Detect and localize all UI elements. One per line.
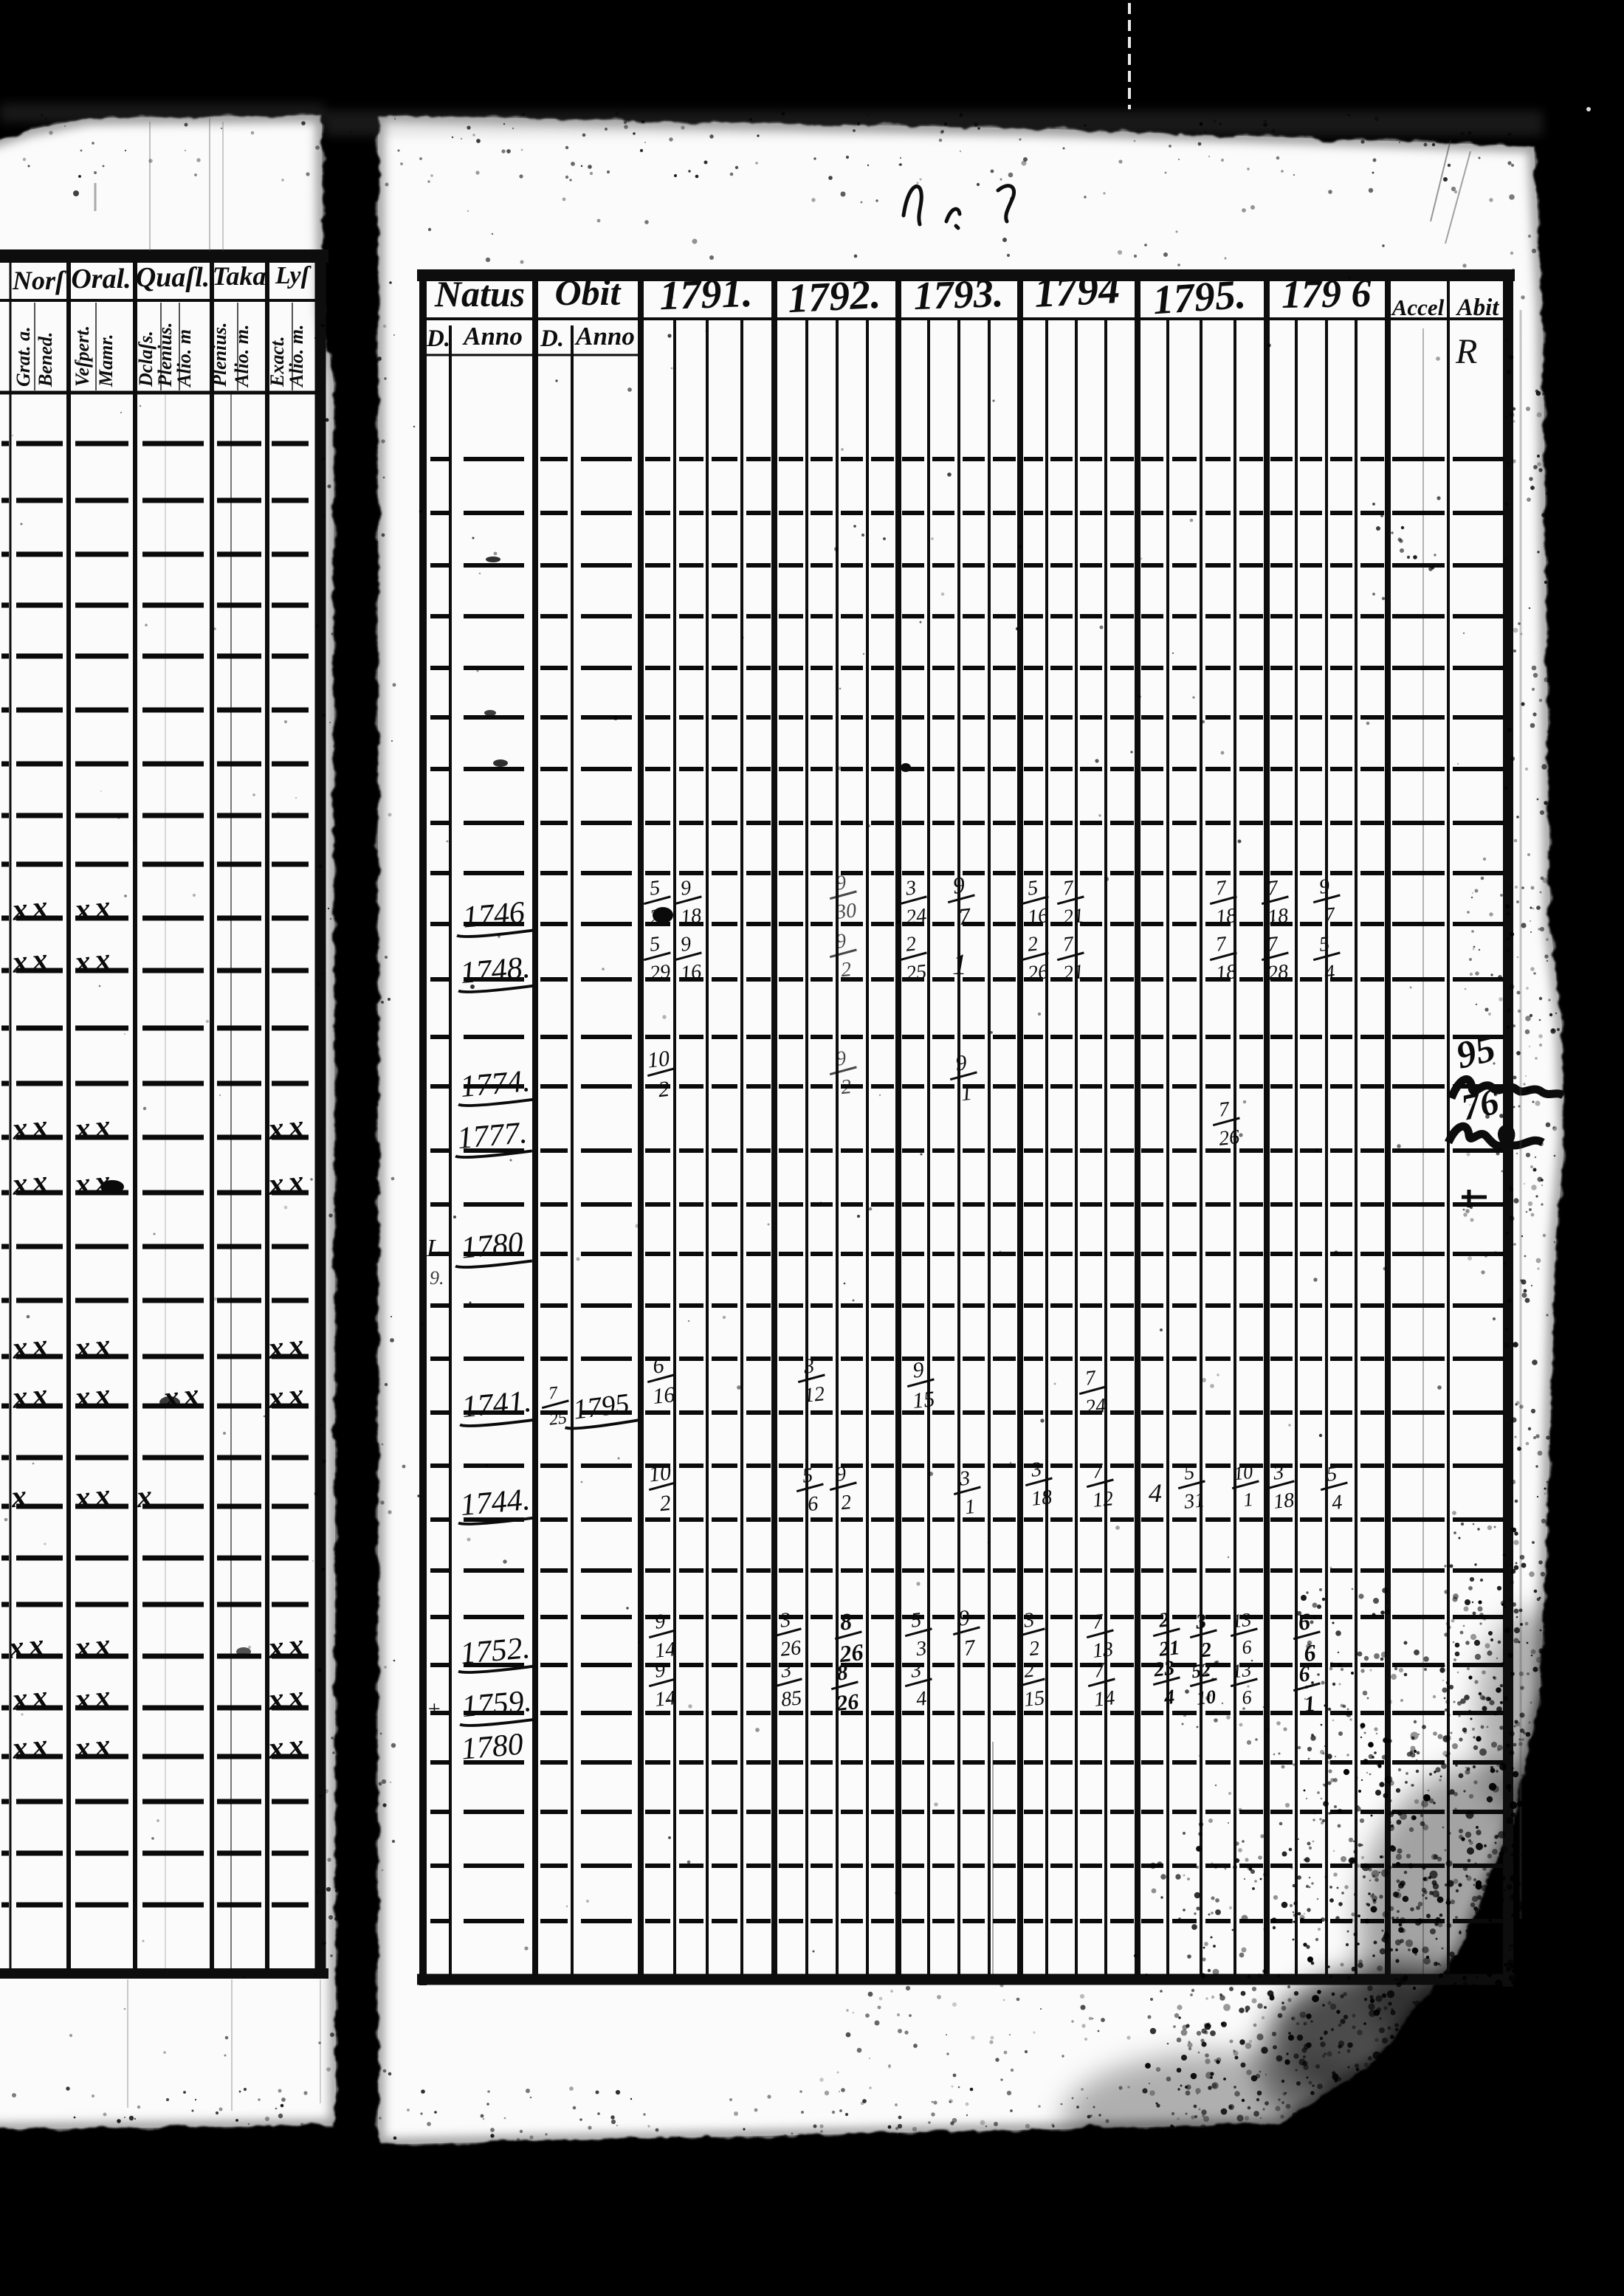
svg-text:xx: xx xyxy=(266,1679,310,1717)
svg-text:xx: xx xyxy=(266,1328,310,1365)
svg-text:179 6: 179 6 xyxy=(1281,271,1372,317)
svg-text:Mamr.: Mamr. xyxy=(95,334,117,387)
svg-text:18: 18 xyxy=(1267,904,1290,929)
svg-text:1795.: 1795. xyxy=(1152,272,1248,324)
svg-text:xx: xx xyxy=(10,1728,54,1765)
svg-text:85: 85 xyxy=(780,1686,803,1711)
svg-text:Lyſ: Lyſ xyxy=(275,262,312,289)
svg-text:10: 10 xyxy=(647,1461,672,1487)
svg-text:xx: xx xyxy=(72,889,117,927)
svg-text:1780: 1780 xyxy=(460,1226,525,1265)
svg-text:1774.: 1774. xyxy=(459,1064,531,1104)
svg-text:xx: xx xyxy=(72,1109,117,1146)
svg-text:14: 14 xyxy=(654,1686,677,1711)
svg-text:1746: 1746 xyxy=(461,895,526,934)
svg-text:21: 21 xyxy=(1062,960,1085,985)
svg-text:xx: xx xyxy=(266,1627,310,1665)
svg-text:Dclaſs.: Dclaſs. xyxy=(135,331,156,387)
svg-text:16: 16 xyxy=(1027,904,1050,929)
svg-text:L: L xyxy=(426,1235,441,1262)
svg-text:13: 13 xyxy=(1231,1659,1253,1683)
svg-text:xx: xx xyxy=(72,1627,117,1665)
svg-text:Anno: Anno xyxy=(574,322,635,351)
svg-text:23: 23 xyxy=(1152,1657,1176,1682)
svg-text:xx: xx xyxy=(266,1164,310,1202)
svg-text:xx: xx xyxy=(10,1109,54,1146)
svg-text:Alio. m: Alio. m xyxy=(173,329,195,388)
svg-text:18: 18 xyxy=(680,904,703,929)
svg-text:D.: D. xyxy=(540,325,564,352)
svg-text:xx: xx xyxy=(10,942,54,979)
svg-text:x: x xyxy=(9,1479,33,1515)
svg-text:Anno: Anno xyxy=(462,322,523,351)
svg-text:25: 25 xyxy=(548,1408,568,1429)
svg-text:18: 18 xyxy=(1031,1486,1053,1511)
svg-text:xx: xx xyxy=(161,1377,205,1415)
svg-text:Quaſl.: Quaſl. xyxy=(136,262,210,293)
svg-text:Bened.: Bened. xyxy=(35,332,56,387)
svg-text:26: 26 xyxy=(835,1689,860,1716)
svg-text:52: 52 xyxy=(1191,1659,1212,1683)
svg-text:1791.: 1791. xyxy=(658,270,753,319)
svg-text:D.: D. xyxy=(426,325,450,352)
svg-text:xx: xx xyxy=(10,889,54,927)
svg-text:Exact.: Exact. xyxy=(266,336,288,387)
svg-text:Abit: Abit xyxy=(1456,294,1500,321)
svg-text:24: 24 xyxy=(905,904,928,929)
svg-text:10: 10 xyxy=(1233,1461,1254,1485)
svg-text:12: 12 xyxy=(803,1382,826,1407)
svg-text:x: x xyxy=(134,1479,159,1515)
svg-text:1793.: 1793. xyxy=(913,271,1005,318)
svg-text:Grat. a.: Grat. a. xyxy=(13,326,34,387)
svg-text:25: 25 xyxy=(905,960,928,985)
svg-text:26: 26 xyxy=(1218,1125,1241,1151)
svg-text:Plenius.: Plenius. xyxy=(154,323,176,387)
svg-text:xx: xx xyxy=(10,1377,54,1415)
svg-text:1748.: 1748. xyxy=(459,951,531,990)
svg-text:R: R xyxy=(1455,332,1477,371)
svg-text:10: 10 xyxy=(646,1047,670,1073)
svg-text:1792.: 1792. xyxy=(787,272,882,323)
svg-text:Norſ: Norſ xyxy=(12,266,66,295)
svg-text:9.: 9. xyxy=(430,1267,444,1289)
svg-text:4: 4 xyxy=(1149,1478,1162,1508)
svg-text:18: 18 xyxy=(1215,960,1238,985)
svg-text:28: 28 xyxy=(1267,960,1290,985)
svg-text:xx: xx xyxy=(72,1478,117,1515)
svg-text:Natus: Natus xyxy=(434,273,525,314)
svg-text:Alio. m.: Alio. m. xyxy=(231,324,252,388)
svg-text:+: + xyxy=(427,1697,441,1721)
svg-text:Veſpert.: Veſpert. xyxy=(72,325,93,387)
svg-text:Obit: Obit xyxy=(555,272,622,313)
svg-text:Alio. m.: Alio. m. xyxy=(286,324,307,388)
svg-text:xx: xx xyxy=(10,1679,54,1717)
svg-text:xx: xx xyxy=(72,1328,117,1365)
svg-text:13: 13 xyxy=(1231,1609,1253,1633)
svg-text:18: 18 xyxy=(1273,1489,1296,1514)
svg-text:16: 16 xyxy=(652,1382,676,1409)
svg-text:xx: xx xyxy=(72,942,117,979)
svg-text:xx: xx xyxy=(266,1109,310,1146)
svg-text:16: 16 xyxy=(680,960,703,985)
svg-text:31: 31 xyxy=(1183,1489,1206,1514)
svg-text:24: 24 xyxy=(1084,1394,1107,1419)
svg-text:15: 15 xyxy=(1023,1686,1046,1711)
svg-text:1777.: 1777. xyxy=(456,1116,529,1156)
svg-text:1780: 1780 xyxy=(460,1727,525,1766)
svg-text:14: 14 xyxy=(1093,1686,1116,1711)
svg-text:Oral.: Oral. xyxy=(71,263,131,294)
svg-text:xx: xx xyxy=(72,1728,117,1765)
svg-text:Taka: Taka xyxy=(213,261,266,291)
svg-text:xx: xx xyxy=(266,1377,310,1415)
svg-text:21: 21 xyxy=(1062,904,1085,929)
svg-text:Accel: Accel xyxy=(1391,294,1445,320)
svg-text:1752.: 1752. xyxy=(459,1631,531,1671)
svg-text:1741.: 1741. xyxy=(461,1385,533,1424)
svg-text:29: 29 xyxy=(649,960,672,985)
svg-text:xx: xx xyxy=(72,1377,117,1415)
svg-text:1: 1 xyxy=(952,948,967,981)
svg-text:xx: xx xyxy=(72,1679,117,1717)
svg-text:xx: xx xyxy=(6,1627,50,1665)
svg-text:12: 12 xyxy=(1092,1487,1115,1512)
svg-text:xx: xx xyxy=(10,1328,54,1365)
svg-text:15: 15 xyxy=(912,1387,936,1413)
svg-text:Plenius.: Plenius. xyxy=(209,323,230,387)
svg-text:26: 26 xyxy=(1027,960,1050,985)
svg-text:26: 26 xyxy=(780,1636,802,1661)
svg-text:xx: xx xyxy=(266,1728,310,1765)
svg-text:1794: 1794 xyxy=(1033,264,1121,317)
svg-text:1759.: 1759. xyxy=(461,1684,533,1724)
svg-text:xx: xx xyxy=(10,1164,54,1202)
svg-text:1744.: 1744. xyxy=(459,1483,531,1523)
svg-text:18: 18 xyxy=(1215,904,1238,929)
svg-text:30: 30 xyxy=(834,899,858,924)
